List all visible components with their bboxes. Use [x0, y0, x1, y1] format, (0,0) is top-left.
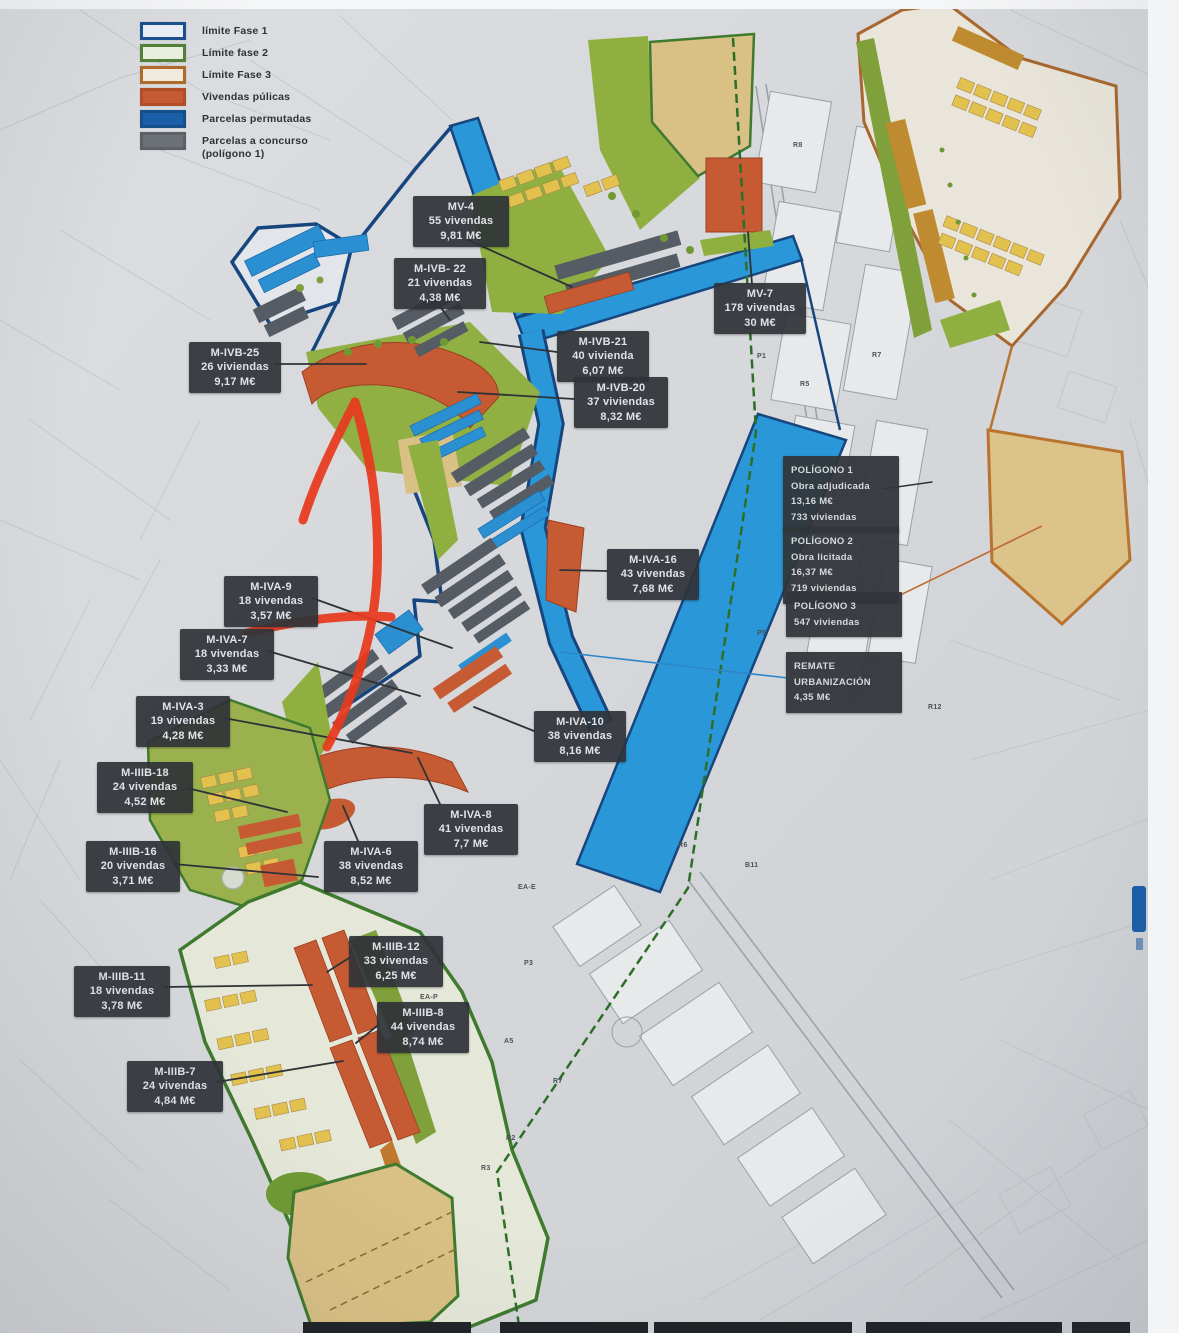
parcel-label-line: M-IIIB-12: [352, 940, 440, 954]
parcel-label-line: 18 vivendas: [77, 984, 167, 998]
parcel-label-line: 8,52 M€: [327, 874, 415, 888]
parcel-label-line: M-IVA-3: [139, 700, 227, 714]
parcel-label-line: M-IVB- 22: [397, 262, 483, 276]
info-box-line: POLÍGONO 3: [794, 599, 894, 615]
map-parcel-code: A5: [504, 1038, 514, 1045]
parcel-label-line: 24 vivendas: [130, 1079, 220, 1093]
legend-item: Parcelas a concurso (polígono 1): [140, 132, 334, 161]
info-box-line: 13,16 M€: [791, 494, 891, 510]
legend-label: Parcelas a concurso (polígono 1): [202, 132, 334, 161]
parcel-label-line: 21 vivendas: [397, 276, 483, 290]
parcel-label-line: M-IVA-10: [537, 715, 623, 729]
legend-item: Límite fase 2: [140, 44, 334, 62]
parcel-label-line: M-IIIB-8: [380, 1006, 466, 1020]
parcel-label-line: 4,52 M€: [100, 795, 190, 809]
map-parcel-code: R8: [793, 142, 803, 149]
parcel-label-line: 7,7 M€: [427, 837, 515, 851]
parcel-label-mv-7: MV-7178 vivendas30 M€: [714, 283, 806, 334]
parcel-label-line: M-IVB-20: [577, 381, 665, 395]
blue-edge-mark: [1132, 886, 1146, 932]
parcel-label-m-iiib-7: M-IIIB-724 vivendas4,84 M€: [127, 1061, 223, 1112]
parcel-label-m-iiib-11: M-IIIB-1118 vivendas3,78 M€: [74, 966, 170, 1017]
info-box-line: 16,37 M€: [791, 565, 891, 581]
parcel-label-line: M-IIIB-11: [77, 970, 167, 984]
legend-item: límite Fase 1: [140, 22, 334, 40]
info-box-poligono-3: POLÍGONO 3547 viviendas: [786, 592, 902, 637]
map-parcel-code: R2: [506, 1135, 516, 1142]
parcel-label-m-ivb-25: M-IVB-2526 viviendas9,17 M€: [189, 342, 281, 393]
parcel-label-m-iva-8: M-IVA-841 vivendas7,7 M€: [424, 804, 518, 855]
map-parcel-code: P1: [757, 353, 766, 360]
map-parcel-code: R12: [928, 704, 942, 711]
info-box-poligono-1: POLÍGONO 1Obra adjudicada13,16 M€733 viv…: [783, 456, 899, 533]
parcel-label-line: M-IVA-6: [327, 845, 415, 859]
map-parcel-code: EA-P: [420, 994, 438, 1001]
legend: límite Fase 1Límite fase 2Límite Fase 3V…: [140, 22, 334, 165]
parcel-label-line: 43 vivendas: [610, 567, 696, 581]
parcel-label-line: 6,25 M€: [352, 969, 440, 983]
map-parcel-code: R6: [678, 842, 688, 849]
legend-label: Parcelas permutadas: [202, 110, 311, 126]
legend-swatch: [140, 132, 186, 150]
parcel-label-line: 18 vivendas: [183, 647, 271, 661]
parcel-label-line: 3,33 M€: [183, 662, 271, 676]
photo-right-margin: [1148, 0, 1179, 1333]
photo-bottom-edge: [303, 1322, 1130, 1333]
parcel-label-line: 8,74 M€: [380, 1035, 466, 1049]
parcel-label-m-iiib-8: M-IIIB-844 vivendas8,74 M€: [377, 1002, 469, 1053]
parcel-label-line: M-IVA-7: [183, 633, 271, 647]
parcel-label-line: 20 vivendas: [89, 859, 177, 873]
parcel-label-line: M-IVA-9: [227, 580, 315, 594]
legend-label: Vivendas púlicas: [202, 88, 290, 104]
parcel-label-m-iva-9: M-IVA-918 vivendas3,57 M€: [224, 576, 318, 627]
legend-swatch: [140, 22, 186, 40]
info-box-line: 733 viviendas: [791, 510, 891, 526]
parcel-label-m-ivb-21: M-IVB-2140 vivienda6,07 M€: [557, 331, 649, 382]
map-parcel-code: R7: [872, 352, 882, 359]
parcel-label-line: 44 vivendas: [380, 1020, 466, 1034]
legend-label: Límite fase 2: [202, 44, 268, 60]
map-parcel-code: R5: [800, 381, 810, 388]
info-box-line: 547 viviendas: [794, 615, 894, 631]
parcel-label-m-iiib-12: M-IIIB-1233 vivendas6,25 M€: [349, 936, 443, 987]
parcel-label-line: MV-7: [717, 287, 803, 301]
parcel-label-line: 19 vivendas: [139, 714, 227, 728]
photo-top-margin: [0, 0, 1179, 9]
legend-label: límite Fase 1: [202, 22, 268, 38]
blue-edge-fleck: [1136, 938, 1143, 950]
parcel-label-line: 9,81 M€: [416, 229, 506, 243]
map-parcel-code: P5: [757, 630, 766, 637]
info-box-line: POLÍGONO 1: [791, 463, 891, 479]
site-plan-map: [0, 0, 1179, 1333]
parcel-label-line: 7,68 M€: [610, 582, 696, 596]
info-box-line: Obra adjudicada: [791, 479, 891, 495]
parcel-label-line: 8,32 M€: [577, 410, 665, 424]
parcel-label-line: 55 vivendas: [416, 214, 506, 228]
parcel-label-m-iva-10: M-IVA-1038 vivendas8,16 M€: [534, 711, 626, 762]
map-parcel-code: EA-E: [518, 884, 536, 891]
info-box-line: POLÍGONO 2: [791, 534, 891, 550]
parcel-label-m-iiib-18: M-IIIB-1824 vivendas4,52 M€: [97, 762, 193, 813]
map-parcel-code: B11: [745, 862, 758, 869]
parcel-label-line: 30 M€: [717, 316, 803, 330]
parcel-label-line: 24 vivendas: [100, 780, 190, 794]
parcel-label-line: 4,28 M€: [139, 729, 227, 743]
parcel-label-line: MV-4: [416, 200, 506, 214]
parcel-label-m-iiib-16: M-IIIB-1620 vivendas3,71 M€: [86, 841, 180, 892]
parcel-label-line: M-IVA-8: [427, 808, 515, 822]
legend-swatch: [140, 66, 186, 84]
parcel-label-line: 37 viviendas: [577, 395, 665, 409]
parcel-label-line: 18 vivendas: [227, 594, 315, 608]
parcel-label-line: M-IVB-21: [560, 335, 646, 349]
parcel-label-line: 3,57 M€: [227, 609, 315, 623]
parcel-label-line: 3,71 M€: [89, 874, 177, 888]
parcel-label-line: 26 viviendas: [192, 360, 278, 374]
urban-plan-photo: límite Fase 1Límite fase 2Límite Fase 3V…: [0, 0, 1179, 1333]
parcel-label-line: 40 vivienda: [560, 349, 646, 363]
parcel-label-m-iva-16: M-IVA-1643 vivendas7,68 M€: [607, 549, 699, 600]
legend-item: Vivendas púlicas: [140, 88, 334, 106]
legend-item: Límite Fase 3: [140, 66, 334, 84]
legend-label: Límite Fase 3: [202, 66, 271, 82]
info-box-line: REMATE: [794, 659, 894, 675]
parcel-label-line: 4,38 M€: [397, 291, 483, 305]
parcel-label-line: M-IIIB-7: [130, 1065, 220, 1079]
legend-item: Parcelas permutadas: [140, 110, 334, 128]
map-parcel-code: R3: [481, 1165, 491, 1172]
parcel-label-line: 178 vivendas: [717, 301, 803, 315]
parcel-label-m-iva-7: M-IVA-718 vivendas3,33 M€: [180, 629, 274, 680]
info-box-line: URBANIZACIÓN: [794, 675, 894, 691]
parcel-label-line: 6,07 M€: [560, 364, 646, 378]
map-parcel-code: P3: [524, 960, 533, 967]
info-box-remate: REMATEURBANIZACIÓN4,35 M€: [786, 652, 902, 713]
parcel-label-line: 9,17 M€: [192, 375, 278, 389]
parcel-label-line: 38 vivendas: [537, 729, 623, 743]
legend-swatch: [140, 110, 186, 128]
parcel-label-line: M-IIIB-16: [89, 845, 177, 859]
parcel-label-line: 8,16 M€: [537, 744, 623, 758]
parcel-label-line: 4,84 M€: [130, 1094, 220, 1108]
parcel-label-line: 3,78 M€: [77, 999, 167, 1013]
parcel-label-line: 33 vivendas: [352, 954, 440, 968]
parcel-label-m-ivb-20: M-IVB-2037 viviendas8,32 M€: [574, 377, 668, 428]
parcel-label-mv-4: MV-455 vivendas9,81 M€: [413, 196, 509, 247]
parcel-label-line: M-IIIB-18: [100, 766, 190, 780]
info-box-line: Obra licitada: [791, 550, 891, 566]
parcel-label-m-iva-6: M-IVA-638 vivendas8,52 M€: [324, 841, 418, 892]
map-parcel-code: R7: [553, 1078, 563, 1085]
parcel-label-m-ivb-22: M-IVB- 2221 vivendas4,38 M€: [394, 258, 486, 309]
parcel-label-line: 38 vivendas: [327, 859, 415, 873]
info-box-line: 4,35 M€: [794, 690, 894, 706]
parcel-label-line: M-IVB-25: [192, 346, 278, 360]
legend-swatch: [140, 44, 186, 62]
parcel-label-m-iva-3: M-IVA-319 vivendas4,28 M€: [136, 696, 230, 747]
legend-swatch: [140, 88, 186, 106]
parcel-label-line: 41 vivendas: [427, 822, 515, 836]
parcel-label-line: M-IVA-16: [610, 553, 696, 567]
